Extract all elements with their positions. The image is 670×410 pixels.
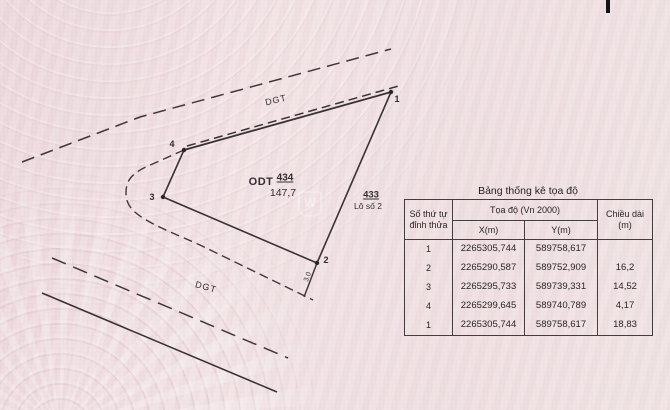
road-top-dashed-line xyxy=(22,49,391,162)
cell-y: 589758,617 xyxy=(525,240,598,260)
cell-stt: 1 xyxy=(405,240,453,260)
col-header-x: X(m) xyxy=(453,221,525,240)
road-bottom-dashed-line xyxy=(52,258,288,358)
table-row: 2 2265290,587 589752,909 16,2 xyxy=(405,259,653,278)
vertex-label-1: 1 xyxy=(394,94,399,104)
coordinate-table-block: Bảng thống kê tọa độ Số thứ tự đỉnh thửa… xyxy=(404,185,652,336)
cell-x: 2265305,744 xyxy=(453,240,525,260)
table-row: 4 2265299,645 589740,789 4,17 xyxy=(405,297,653,316)
cell-length: 16,2 xyxy=(598,259,653,278)
neighbor-parcel-number: 433 xyxy=(363,190,379,201)
cell-length: 4,17 xyxy=(598,297,653,316)
parcel-edge-1-2 xyxy=(317,92,391,263)
cell-x: 2265305,744 xyxy=(453,316,525,336)
col-header-length: Chiều dài (m) xyxy=(598,200,653,240)
parcel-area: 147,7 xyxy=(270,187,296,199)
cell-y: 589752,909 xyxy=(525,259,598,278)
parcel-edge-2-3 xyxy=(163,197,317,263)
cell-y: 589739,331 xyxy=(525,278,598,297)
col-header-index: Số thứ tự đỉnh thửa xyxy=(405,200,453,240)
road-edge-dashed-line xyxy=(187,85,402,146)
cell-x: 2265295,733 xyxy=(453,278,525,297)
table-row: 3 2265295,733 589739,331 14,52 xyxy=(405,278,653,297)
col-header-y: Y(m) xyxy=(525,221,598,240)
col-header-coords: Tọa độ (Vn 2000) xyxy=(453,200,598,221)
vertex-label-3: 3 xyxy=(149,192,154,202)
vertex-marker-2 xyxy=(315,261,319,265)
cell-length: 18,83 xyxy=(598,316,653,336)
cell-stt: 4 xyxy=(405,297,453,316)
vertex-marker-4 xyxy=(182,148,186,152)
cell-y: 589758,617 xyxy=(525,316,598,336)
cell-stt: 1 xyxy=(405,316,453,336)
cell-x: 2265290,587 xyxy=(453,259,525,278)
vertex-marker-3 xyxy=(161,195,165,199)
road-bottom-solid-line xyxy=(42,293,277,392)
coordinate-table-title: Bảng thống kê tọa độ xyxy=(404,185,652,197)
vertex-label-4: 4 xyxy=(169,139,174,149)
cell-x: 2265299,645 xyxy=(453,297,525,316)
table-row: 1 2265305,744 589758,617 18,83 xyxy=(405,316,653,336)
cell-stt: 2 xyxy=(405,259,453,278)
cell-stt: 3 xyxy=(405,278,453,297)
cell-y: 589740,789 xyxy=(525,297,598,316)
cell-length xyxy=(598,240,653,260)
parcel-edge-3-4 xyxy=(163,150,184,197)
certificate-page: DGT DGT ODT 434 147,7 433 Lô số 2 3.0 1 … xyxy=(0,0,670,410)
neighbor-parcel-label: Lô số 2 xyxy=(354,201,382,211)
vertex-label-2: 2 xyxy=(323,255,328,265)
table-row: 1 2265305,744 589758,617 xyxy=(405,240,653,260)
coordinate-table: Số thứ tự đỉnh thửa Tọa độ (Vn 2000) Chi… xyxy=(404,199,653,336)
vertex-marker-1 xyxy=(389,90,393,94)
cell-length: 14,52 xyxy=(598,278,653,297)
parcel-number: 434 xyxy=(277,173,294,184)
